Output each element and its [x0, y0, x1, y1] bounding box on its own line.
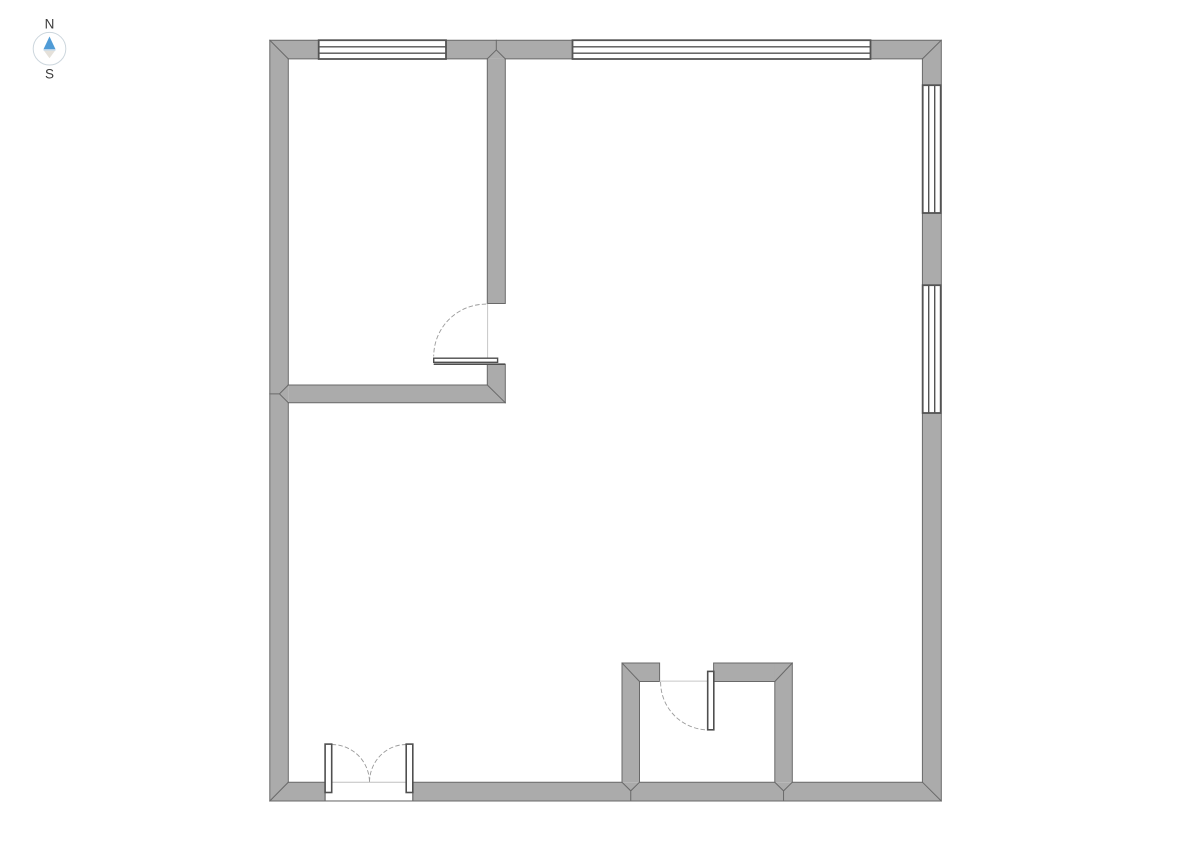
svg-text:N: N — [45, 17, 55, 32]
svg-text:S: S — [45, 67, 54, 82]
